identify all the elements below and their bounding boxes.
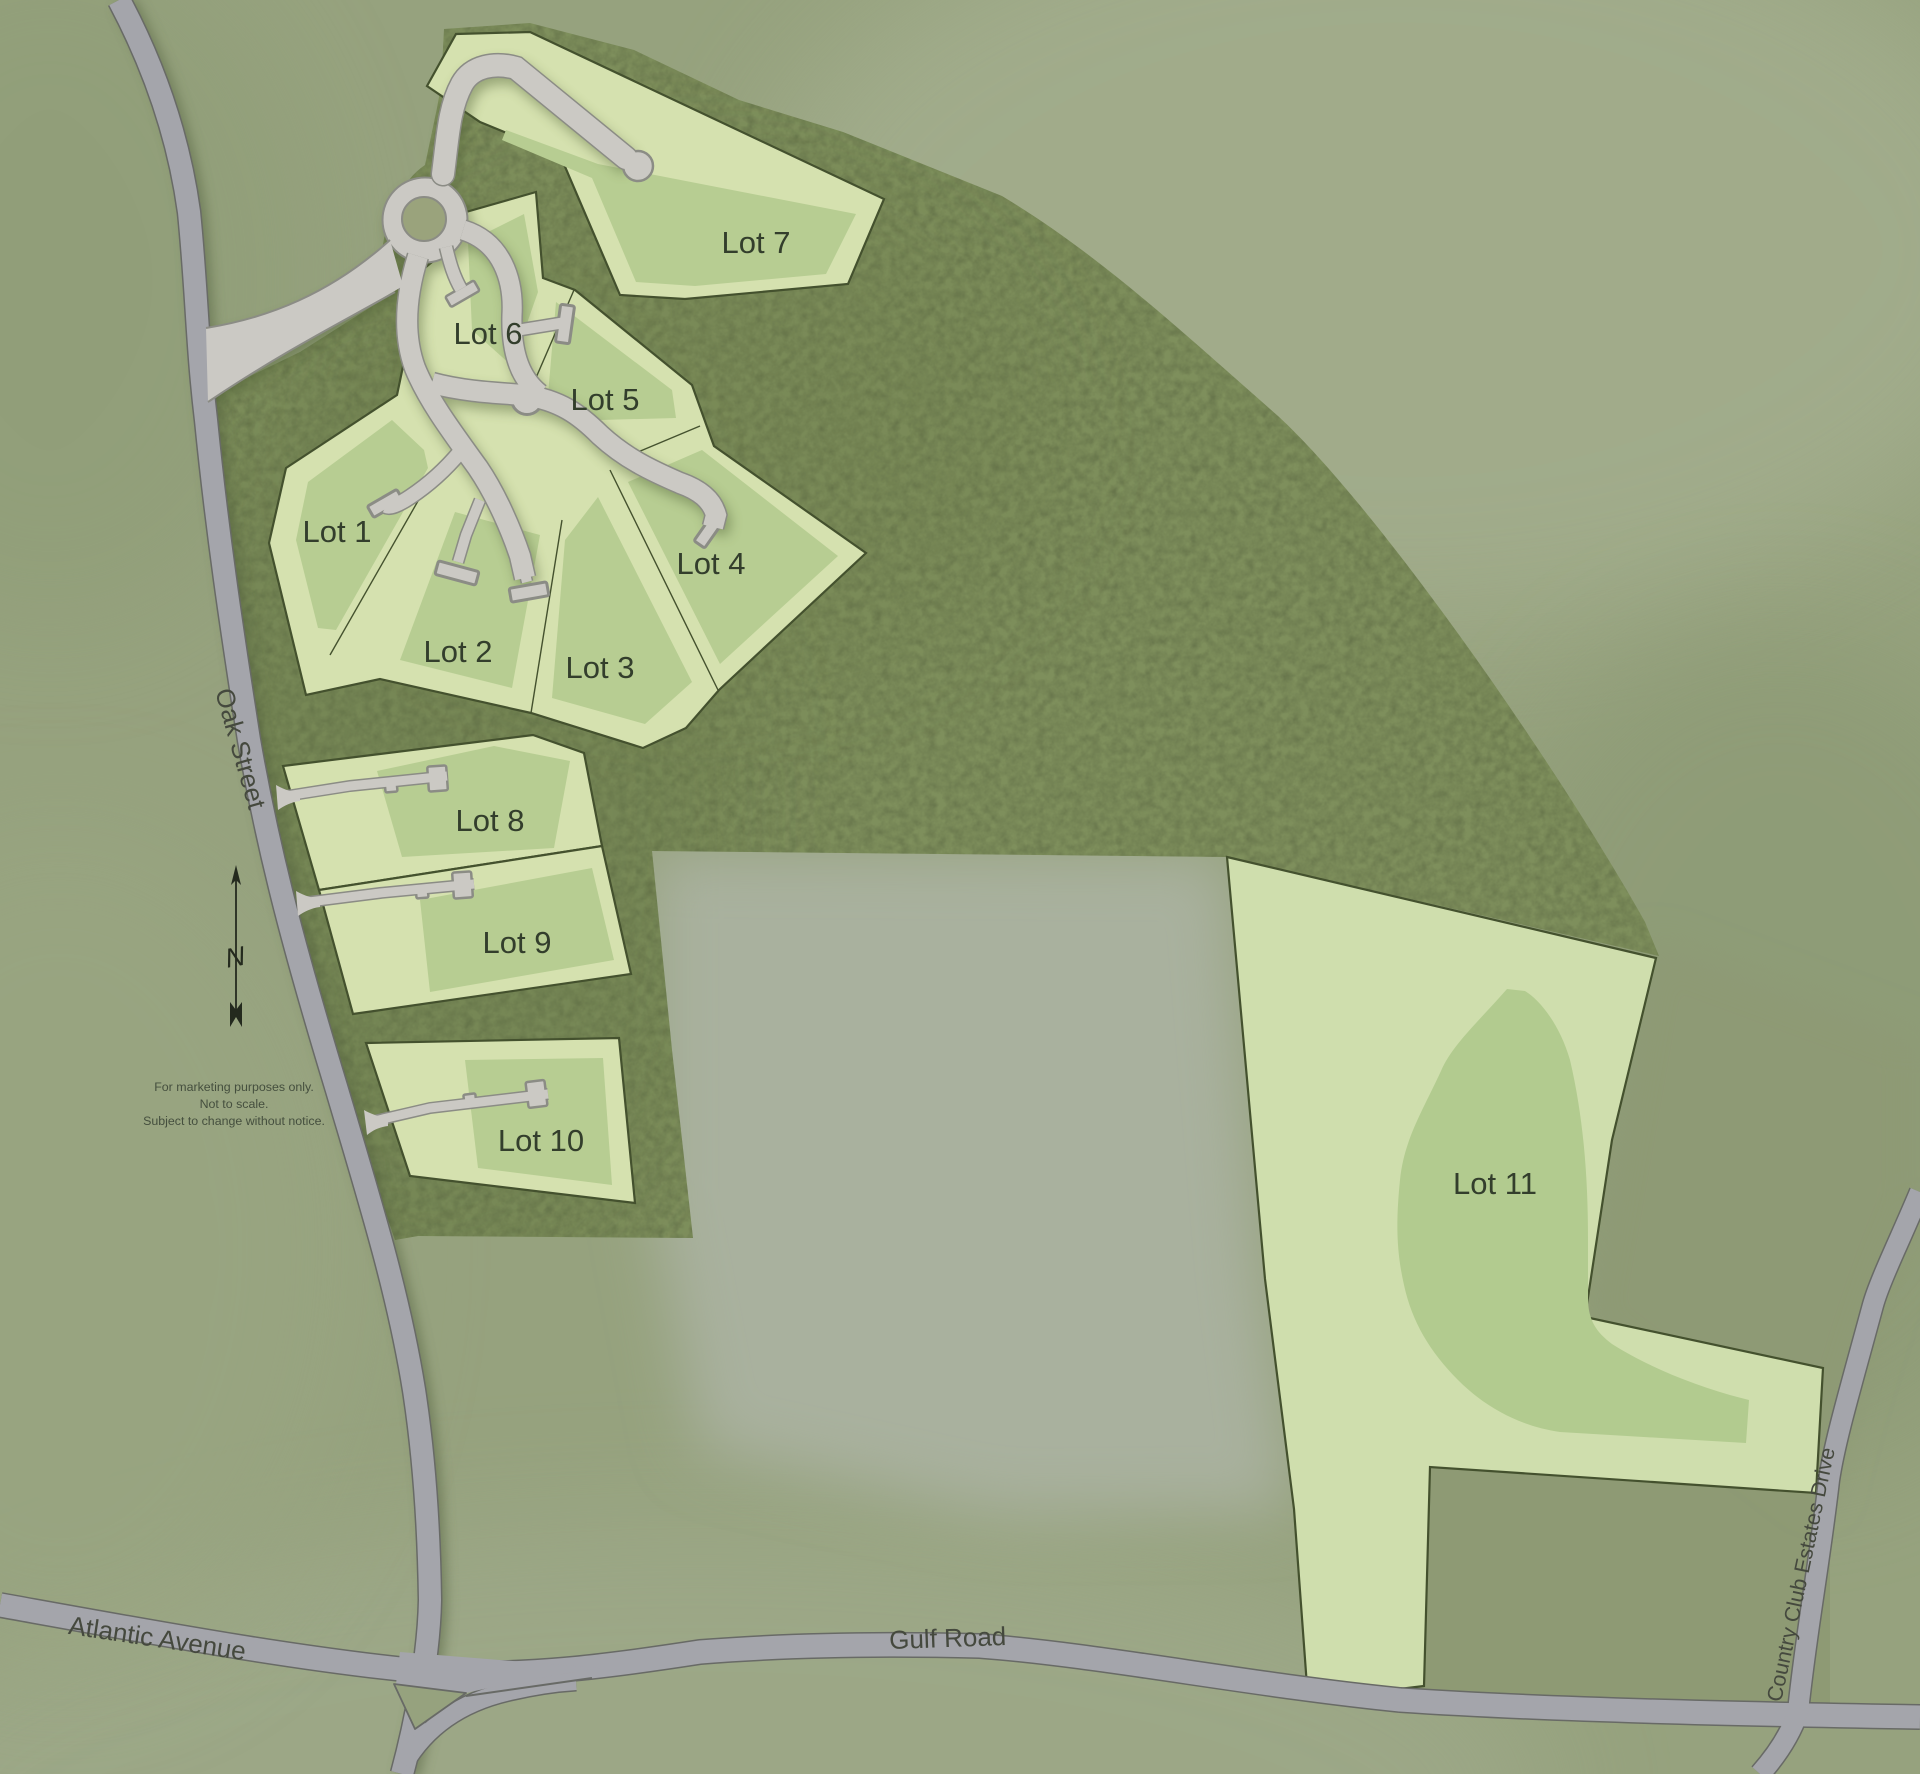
svg-text:Lot 5: Lot 5: [571, 382, 640, 417]
svg-text:Lot 2: Lot 2: [424, 634, 493, 669]
svg-text:Lot 9: Lot 9: [483, 925, 552, 960]
svg-text:Lot 1: Lot 1: [303, 514, 372, 549]
svg-text:Gulf Road: Gulf Road: [889, 1621, 1007, 1655]
svg-text:Lot 11: Lot 11: [1453, 1166, 1537, 1201]
svg-text:Subject to change without noti: Subject to change without notice.: [143, 1114, 325, 1128]
svg-text:Lot 3: Lot 3: [566, 650, 635, 685]
svg-text:Lot 7: Lot 7: [722, 225, 791, 260]
svg-text:Lot 4: Lot 4: [677, 546, 746, 581]
svg-text:For marketing purposes only.: For marketing purposes only.: [154, 1080, 314, 1094]
svg-text:Not to scale.: Not to scale.: [200, 1097, 269, 1111]
svg-text:Lot 8: Lot 8: [456, 803, 525, 838]
svg-text:Lot 6: Lot 6: [454, 316, 523, 351]
svg-text:Lot 10: Lot 10: [498, 1123, 584, 1158]
